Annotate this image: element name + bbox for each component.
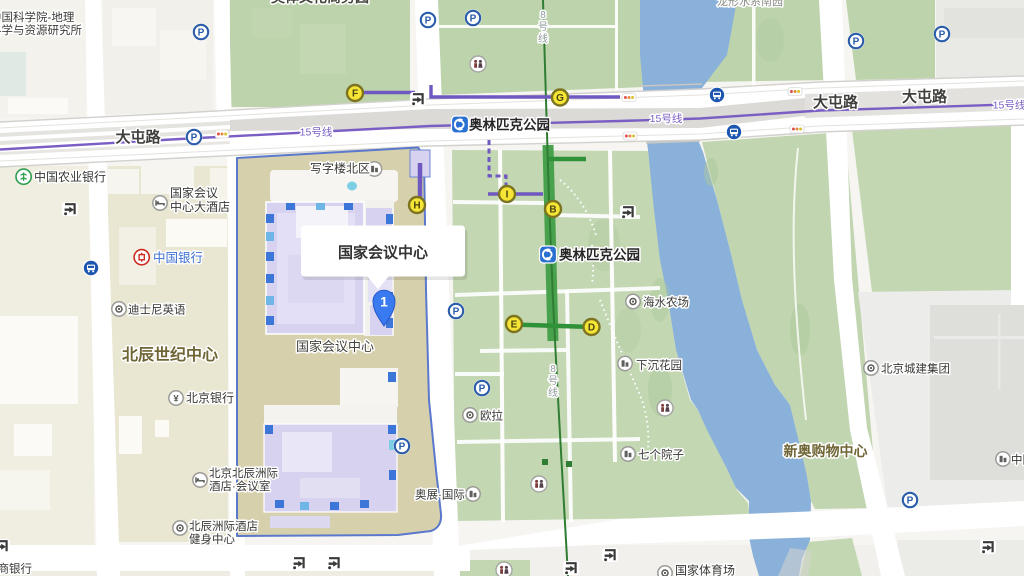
svg-text:奥展·国际: 奥展·国际	[415, 488, 465, 502]
svg-text:奥林匹克公园: 奥林匹克公园	[469, 117, 550, 133]
svg-text:E: E	[511, 320, 518, 331]
svg-text:线: 线	[548, 386, 558, 399]
svg-text:北京银行: 北京银行	[186, 391, 234, 405]
svg-text:I: I	[506, 190, 509, 201]
svg-text:新奥购物中心: 新奥购物中心	[784, 443, 868, 459]
svg-text:下沉花园: 下沉花园	[636, 359, 682, 372]
svg-text:8: 8	[540, 10, 546, 21]
svg-text:迪士尼英语: 迪士尼英语	[128, 303, 186, 317]
svg-text:大屯路: 大屯路	[115, 128, 161, 146]
svg-text:大屯路: 大屯路	[813, 93, 859, 111]
svg-text:奥体文化商务园: 奥体文化商务园	[271, 0, 369, 5]
svg-text:酒店·会议室: 酒店·会议室	[209, 479, 270, 493]
svg-text:奥林匹克公园: 奥林匹克公园	[559, 247, 640, 263]
svg-text:国家会议中心: 国家会议中心	[296, 339, 374, 354]
svg-text:中国银行: 中国银行	[153, 250, 203, 265]
svg-text:国家会议中心: 国家会议中心	[338, 244, 428, 262]
svg-text:国家会议: 国家会议	[170, 185, 218, 200]
svg-text:中国农业银行: 中国农业银行	[34, 169, 106, 184]
svg-text:B: B	[549, 205, 556, 216]
svg-text:中心大酒店: 中心大酒店	[170, 199, 230, 214]
svg-text:号: 号	[538, 21, 548, 33]
svg-text:¥: ¥	[173, 393, 179, 404]
svg-text:F: F	[352, 89, 358, 100]
svg-text:国家体育场: 国家体育场	[675, 563, 735, 576]
svg-text:1: 1	[380, 294, 388, 310]
svg-text:北辰世纪中心: 北辰世纪中心	[122, 345, 218, 364]
svg-text:北京城建集团: 北京城建集团	[881, 362, 950, 376]
svg-text:北京北辰洲际: 北京北辰洲际	[209, 466, 278, 480]
svg-text:G: G	[556, 93, 564, 104]
svg-text:欧拉: 欧拉	[480, 409, 503, 423]
svg-text:中国科学院-地理: 中国科学院-地理	[0, 10, 75, 24]
svg-text:海水农场: 海水农场	[643, 295, 689, 309]
svg-text:8: 8	[550, 364, 556, 375]
svg-text:15号线: 15号线	[993, 99, 1024, 112]
svg-text:大屯路: 大屯路	[902, 88, 948, 106]
svg-text:15号线: 15号线	[300, 126, 333, 139]
svg-text:号: 号	[548, 375, 558, 387]
svg-text:15号线: 15号线	[650, 112, 683, 125]
svg-text:健身中心: 健身中心	[189, 532, 235, 546]
svg-text:中国: 中国	[1011, 454, 1024, 467]
svg-text:科学与资源研究所: 科学与资源研究所	[0, 23, 82, 37]
svg-text:龙形水系南园: 龙形水系南园	[717, 0, 783, 8]
svg-text:写字楼北区: 写字楼北区	[310, 161, 370, 176]
svg-text:H: H	[413, 201, 420, 212]
svg-text:工商银行: 工商银行	[0, 562, 32, 576]
svg-text:七个院子: 七个院子	[638, 448, 684, 462]
svg-text:D: D	[588, 323, 595, 334]
svg-text:北辰洲际酒店: 北辰洲际酒店	[189, 519, 258, 533]
svg-text:线: 线	[538, 32, 548, 45]
